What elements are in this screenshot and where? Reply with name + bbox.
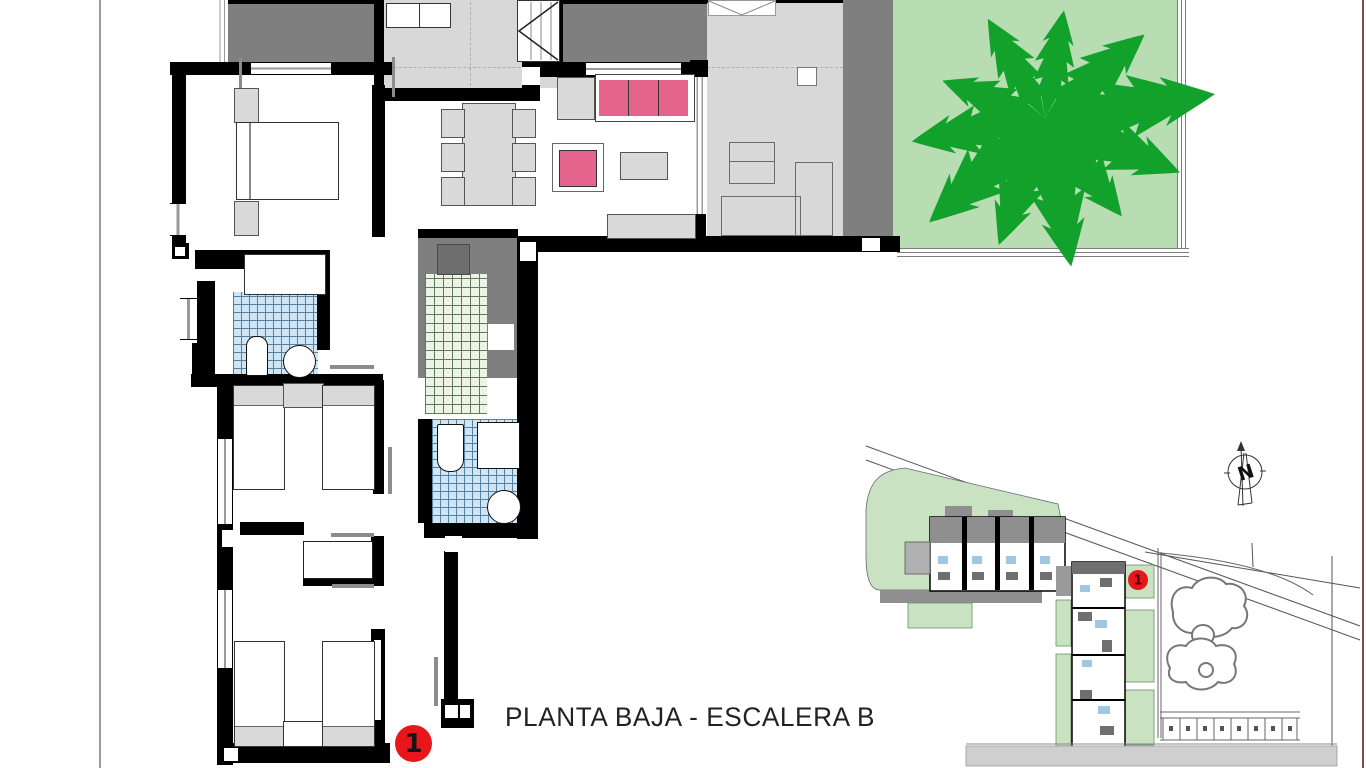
room-upper-porch <box>560 0 707 62</box>
door-swing <box>332 584 374 588</box>
wall-segment <box>523 236 900 252</box>
door-opening <box>445 705 458 718</box>
outdoor-armchair <box>729 142 775 184</box>
door-swing <box>388 447 392 494</box>
site-boundary <box>1252 543 1253 567</box>
parking-row <box>1160 712 1300 740</box>
bed-pillow <box>235 726 284 746</box>
nightstand <box>234 201 259 236</box>
single-bed <box>234 641 285 747</box>
wall-segment <box>374 0 384 100</box>
outdoor-sofa <box>721 196 801 236</box>
page-fold-line <box>99 0 101 768</box>
door-opening <box>222 530 237 547</box>
wall-segment <box>217 374 233 765</box>
tree-icon <box>880 0 1230 275</box>
window <box>170 203 186 236</box>
page-edge-line <box>1362 0 1364 768</box>
dining-chair <box>441 177 465 206</box>
double-bed <box>236 122 339 200</box>
site-unit-number: 1 <box>1133 574 1142 589</box>
plan-title: PLANTA BAJA - ESCALERA B <box>505 702 875 733</box>
door-opening <box>520 242 536 261</box>
door-opening <box>460 705 470 718</box>
dining-chair <box>441 109 465 138</box>
outdoor-armchair-seat <box>730 161 774 162</box>
shower-tray <box>477 422 520 469</box>
water-heater <box>437 244 470 275</box>
door-opening <box>224 748 238 761</box>
toilet <box>437 424 464 472</box>
bed-pillow <box>234 386 284 406</box>
stairs-icon <box>517 0 560 62</box>
site-walkway <box>880 590 1042 603</box>
hall-closet <box>419 3 451 28</box>
nightstand <box>234 88 259 123</box>
window <box>250 63 332 74</box>
side-table <box>557 77 595 120</box>
site-unit-marker: 1 <box>1128 570 1148 590</box>
door-opening <box>175 247 185 256</box>
wall-segment <box>418 419 432 523</box>
guide-line <box>707 67 843 68</box>
door-swing <box>330 365 374 369</box>
dining-table <box>462 103 516 206</box>
wall-segment <box>222 0 378 4</box>
door-opening <box>445 536 462 552</box>
single-bed <box>322 641 375 747</box>
wall-segment <box>522 84 540 101</box>
wall-segment <box>444 551 458 708</box>
window <box>180 298 197 340</box>
window <box>217 0 228 62</box>
wall-segment <box>240 522 304 535</box>
wardrobe-niche <box>374 640 381 720</box>
skylight-icon <box>708 0 776 17</box>
swimming-pool <box>1167 578 1247 690</box>
site-road-strip <box>966 746 1337 766</box>
bed-pillow <box>323 726 374 746</box>
washbasin <box>487 490 521 524</box>
sofa <box>595 74 695 122</box>
door-opening <box>797 67 817 86</box>
bed-headboard <box>249 123 251 199</box>
patio-opening <box>488 324 514 350</box>
door-opening <box>522 67 540 85</box>
wall-segment <box>418 229 518 238</box>
sofa-seats <box>599 80 688 116</box>
outdoor-sofa-chaise <box>795 162 833 236</box>
unit-number-badge: 1 <box>395 725 432 762</box>
door-swing <box>434 657 438 706</box>
door-swing <box>392 57 395 97</box>
dining-chair <box>441 143 465 172</box>
site-building-b <box>1072 562 1125 748</box>
single-bed <box>233 385 285 490</box>
unit-number: 1 <box>404 729 422 759</box>
dining-chair <box>512 177 536 206</box>
washbasin <box>283 345 316 378</box>
wardrobe <box>303 541 373 579</box>
bathtub <box>244 254 326 295</box>
dining-chair <box>512 109 536 138</box>
room-front-terrace <box>228 0 378 62</box>
patio-tiled-floor <box>425 274 487 414</box>
coffee-table <box>620 152 668 180</box>
wall-segment <box>560 0 707 4</box>
nightstand <box>283 383 324 408</box>
north-arrow-icon: N <box>1224 441 1266 506</box>
hall-closet <box>386 3 420 28</box>
patio-opening <box>488 379 514 412</box>
single-bed <box>322 385 375 490</box>
site-green-area <box>908 603 972 628</box>
window <box>218 589 232 669</box>
north-label: N <box>1235 460 1257 486</box>
site-plan: N 1 <box>853 430 1363 768</box>
wall-segment <box>192 343 215 377</box>
toilet <box>246 336 268 376</box>
door-swing <box>331 533 374 537</box>
tv-cabinet <box>607 214 696 239</box>
armchair-seat <box>559 150 597 187</box>
floorplan-page: N 1 1 PLANTA BAJA - ESCALERA B <box>0 0 1366 768</box>
door-opening <box>862 238 880 251</box>
wall-segment <box>384 88 522 101</box>
site-walkway <box>1056 566 1071 596</box>
guide-line <box>470 2 471 86</box>
nightstand <box>283 721 324 747</box>
bed-pillow <box>323 386 374 406</box>
sliding-glass-door <box>694 77 706 214</box>
wall-segment <box>372 85 385 237</box>
dining-chair <box>512 143 536 172</box>
wall-segment <box>197 281 215 343</box>
window <box>218 438 232 525</box>
wall-segment <box>517 236 538 539</box>
